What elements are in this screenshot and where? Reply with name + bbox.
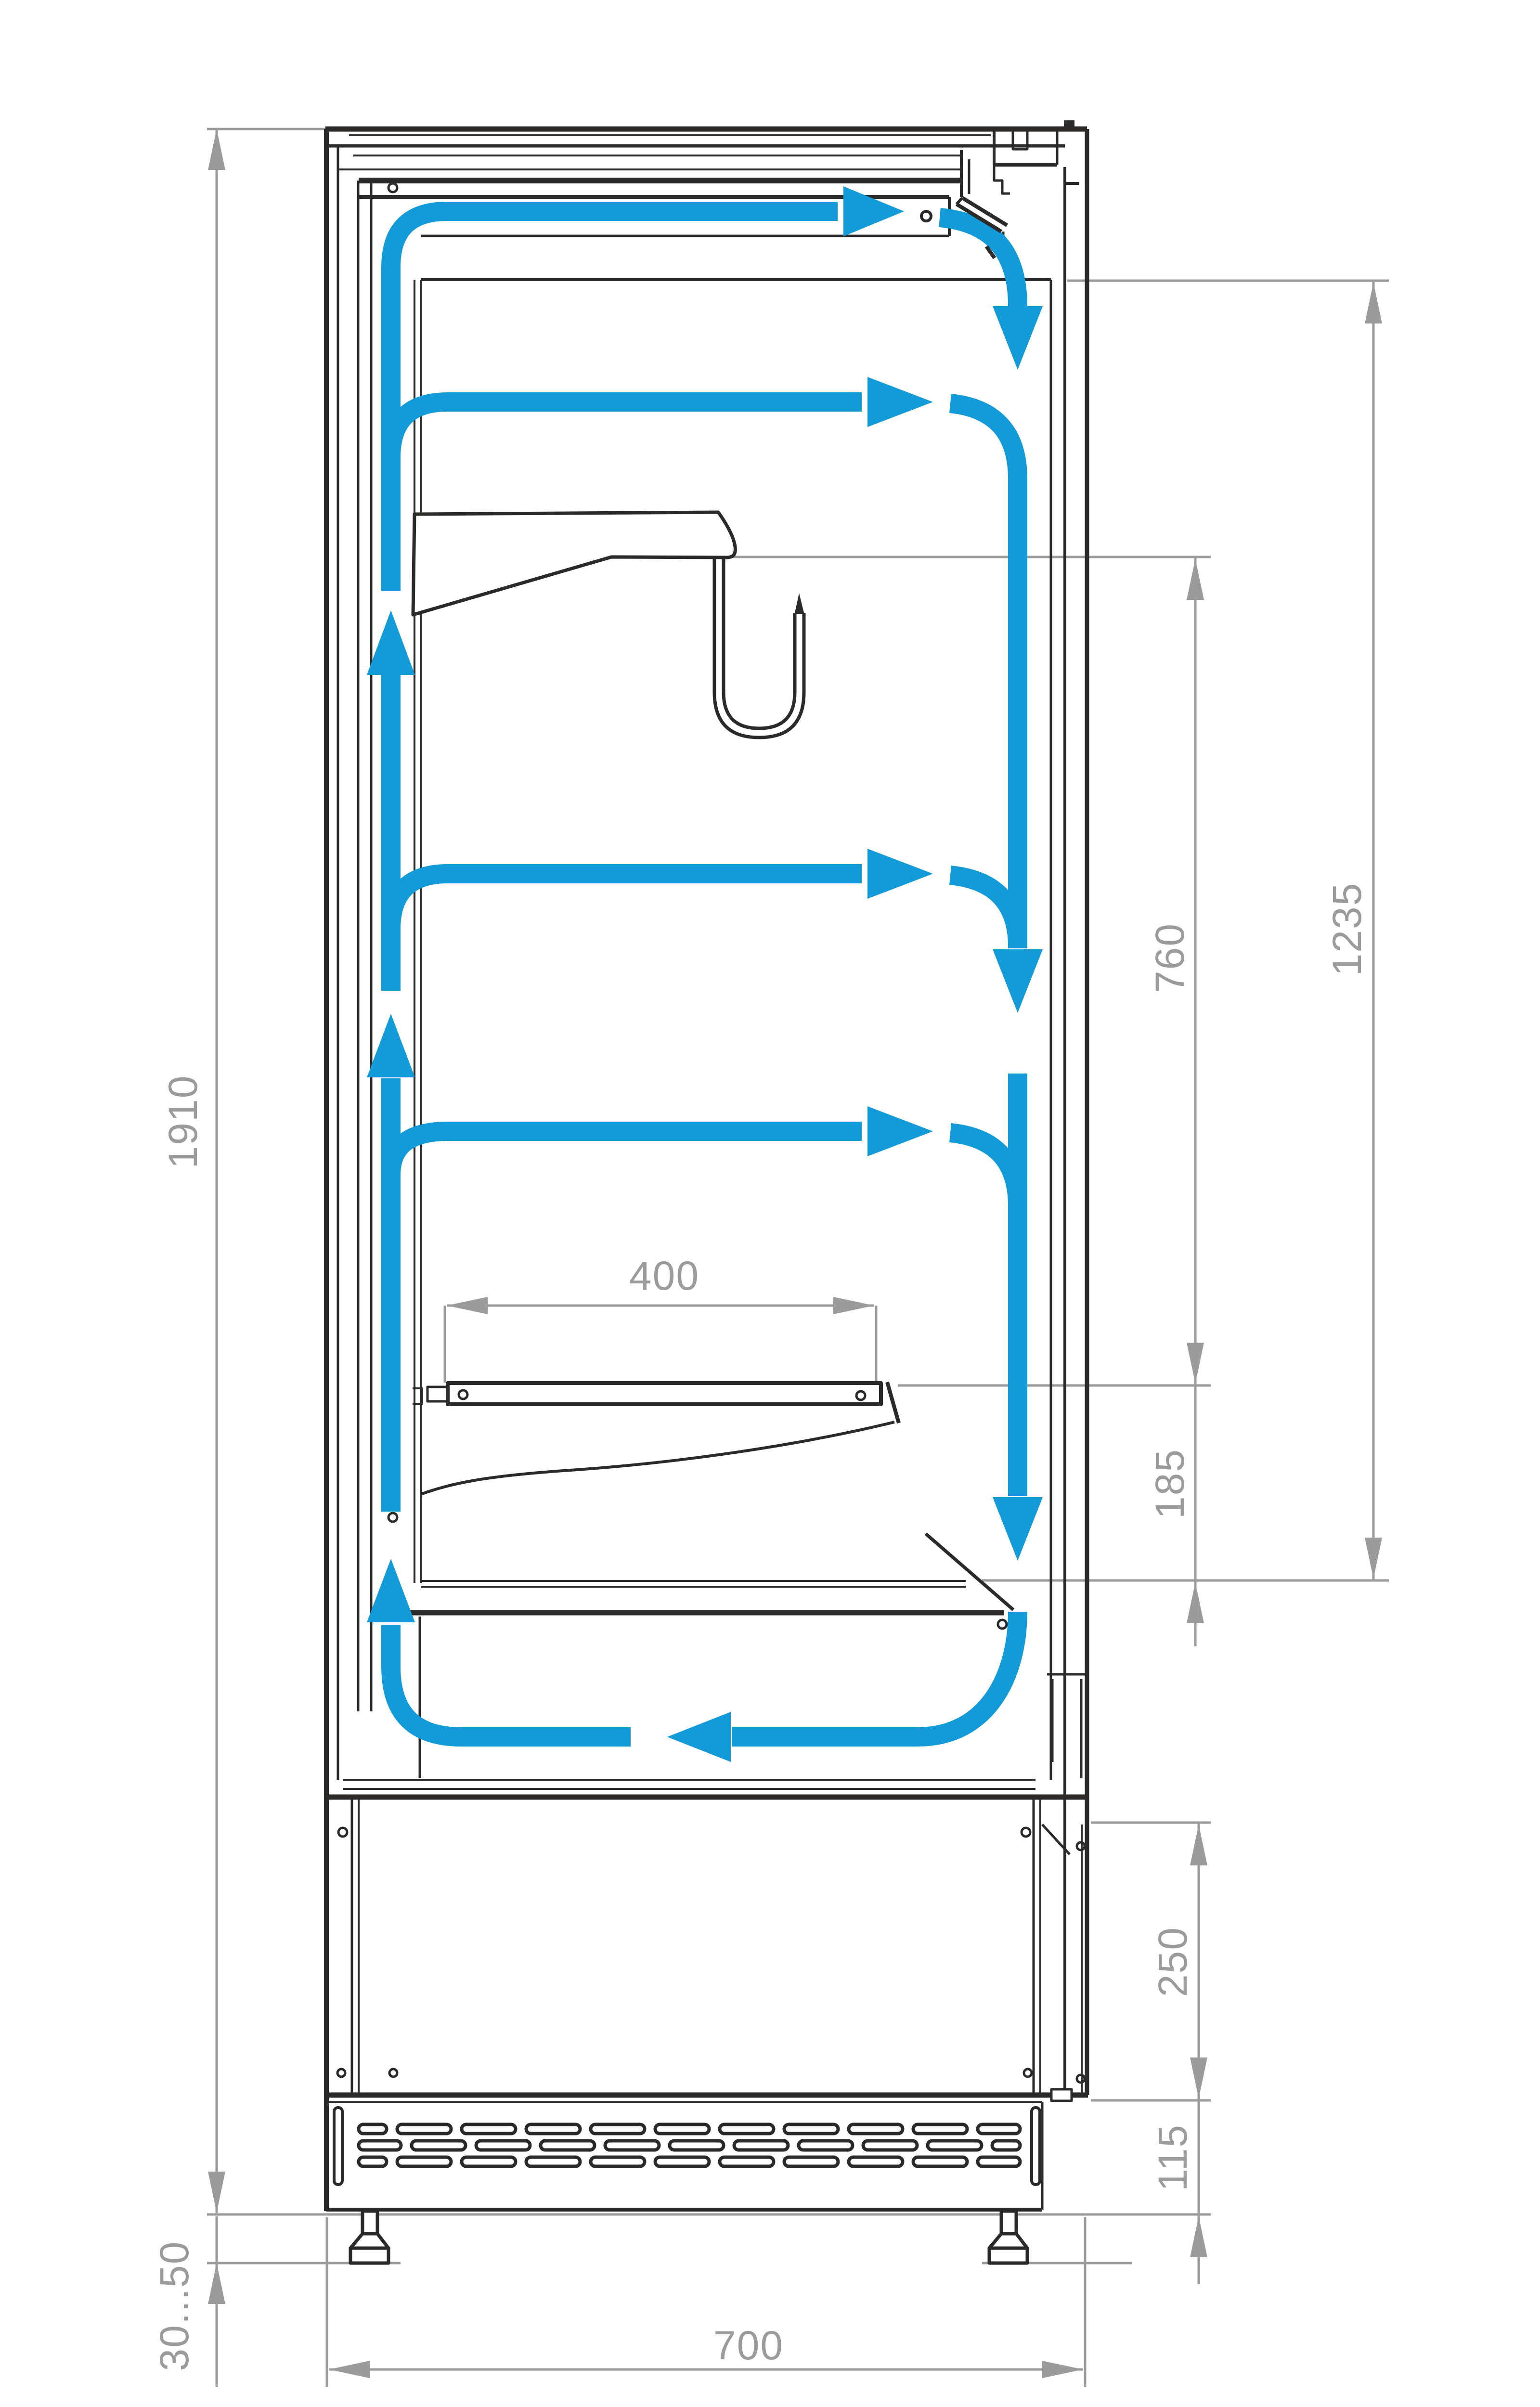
- dim-label-grille: 115: [1150, 2124, 1195, 2191]
- arrow-400-left: [447, 1297, 488, 1314]
- grille-slot: [863, 2141, 917, 2150]
- hook-inner: [724, 558, 795, 728]
- shelf-front-lip: [887, 1382, 899, 1423]
- grille-slot: [526, 2124, 580, 2134]
- intake-deflector: [926, 1534, 1013, 1610]
- airflow-front-merge-4: [950, 1133, 1018, 1206]
- grille-slot: [992, 2141, 1020, 2150]
- duct-screw-mid: [388, 1513, 397, 1522]
- grille-slot: [591, 2124, 645, 2134]
- airflow-return-right: [732, 1612, 1018, 1737]
- airflow-front-merge-3: [950, 875, 1018, 946]
- comp-screw-1: [338, 1828, 347, 1837]
- grille-slot: [397, 2157, 451, 2166]
- airflow-front-seg-2: [950, 403, 1018, 948]
- grille-slot: [462, 2157, 516, 2166]
- grille-slot: [734, 2141, 788, 2150]
- grille-slot: [978, 2157, 1020, 2166]
- foot-left-base: [350, 2248, 388, 2263]
- grille-slot: [655, 2157, 709, 2166]
- grille-slot: [720, 2157, 774, 2166]
- shelf-under-cable: [421, 1422, 894, 1494]
- machine-compartment: [326, 1797, 1088, 2101]
- outlet-box-screw: [921, 211, 931, 221]
- grille-slot: [913, 2157, 967, 2166]
- cabinet-structure: [325, 120, 1088, 2263]
- grille-slot: [359, 2124, 387, 2134]
- airflow-return-left: [391, 1625, 631, 1737]
- arrow-185-bottom: [1187, 1582, 1204, 1623]
- airflow-arrowhead-band-3: [867, 849, 933, 899]
- arrow-1235-top: [1365, 283, 1382, 324]
- airflow-arrows: [367, 186, 1043, 1762]
- arrow-760-top: [1187, 559, 1204, 600]
- foot-right: [989, 2211, 1027, 2263]
- grille-slot: [720, 2124, 774, 2134]
- arrow-feet-bottom: [208, 2263, 225, 2304]
- airflow-arrowhead-front-3: [993, 1497, 1043, 1561]
- grille-slot: [397, 2124, 451, 2134]
- dim-label-duct-to-shelf: 760: [1147, 923, 1192, 993]
- arrow-1910-top: [208, 129, 225, 170]
- cabinet-cross-section-diagram: 1910 30...50 700 400 760 1235 185 250 11…: [0, 0, 1540, 2407]
- canopy-bolt: [1064, 120, 1074, 129]
- comp-screw-5: [337, 2069, 345, 2077]
- grille-slot: [849, 2124, 903, 2134]
- airflow-arrowhead-band-2: [867, 377, 933, 427]
- grille-slot: [359, 2141, 401, 2150]
- arrow-250-top: [1190, 1825, 1207, 1865]
- grille-slot: [412, 2141, 466, 2150]
- arrow-760-bottom: [1187, 1343, 1204, 1384]
- airflow-arrowhead-front-2: [993, 949, 1043, 1013]
- walls: [326, 129, 1087, 2211]
- arrow-250-bottom: [1190, 2058, 1207, 2098]
- airflow-arrowhead-duct-2: [367, 1014, 415, 1077]
- adjustable-feet: [350, 2211, 1027, 2263]
- dim-label-outlet: 185: [1147, 1449, 1192, 1519]
- grille-slot: [849, 2157, 903, 2166]
- dim-label-shelf-depth: 400: [629, 1253, 699, 1298]
- shelf-back-bracket: [427, 1387, 448, 1401]
- grille-slots: [359, 2124, 1020, 2166]
- arrow-bottom-shared: [208, 2172, 225, 2213]
- comp-flange: [1051, 2089, 1072, 2101]
- grille-slot: [605, 2141, 659, 2150]
- arrow-700-left: [329, 2361, 370, 2378]
- foot-right-cone: [989, 2234, 1027, 2248]
- foot-right-base: [989, 2248, 1027, 2263]
- shelf-slab: [448, 1383, 881, 1404]
- comp-screw-2: [1022, 1828, 1030, 1837]
- upper-canopy-shelf: [413, 512, 804, 738]
- airflow-band-2: [391, 402, 862, 486]
- airflow-arrowhead-band-4: [867, 1106, 933, 1156]
- airflow-band-4: [391, 1131, 862, 1199]
- grille-slot: [526, 2157, 580, 2166]
- dim-label-overall-height: 1910: [160, 1075, 206, 1169]
- foot-left: [350, 2211, 388, 2263]
- grille-slot: [913, 2124, 967, 2134]
- duct-screw-top: [388, 183, 397, 192]
- foot-right-stem: [1001, 2211, 1016, 2234]
- canopy-shelf-body: [413, 512, 735, 615]
- grille-slot: [784, 2157, 838, 2166]
- comp-screw-6: [389, 2069, 397, 2077]
- airflow-arrowhead-duct-1: [367, 610, 415, 675]
- grille-slot: [784, 2124, 838, 2134]
- grille-end-slot-left: [334, 2108, 342, 2185]
- airflow-band-3: [391, 874, 862, 958]
- grille-slot: [359, 2157, 387, 2166]
- floor-screw: [998, 1620, 1007, 1629]
- grille-slot: [591, 2157, 645, 2166]
- dim-label-feet-range: 30...50: [152, 2241, 197, 2371]
- grille-slot: [462, 2124, 516, 2134]
- comp-screw-7: [1024, 2069, 1032, 2077]
- grille-slot: [655, 2124, 709, 2134]
- grille-slot: [476, 2141, 530, 2150]
- hook-tip: [795, 593, 804, 613]
- dim-label-compressor: 250: [1150, 1927, 1195, 1997]
- canopy-steps: [994, 165, 1010, 194]
- bottom-basin: [326, 1581, 1088, 1797]
- arrow-115-bottom: [1190, 2216, 1207, 2257]
- arrow-1235-bottom: [1365, 1538, 1382, 1579]
- dim-label-depth: 700: [713, 2323, 784, 2368]
- lower-shelf: [421, 1382, 899, 1494]
- grille-end-slot-right: [1032, 2108, 1040, 2185]
- grille-slot: [928, 2141, 982, 2150]
- grille-slot: [978, 2124, 1020, 2134]
- arrow-700-right: [1042, 2361, 1083, 2378]
- grille-slot: [541, 2141, 595, 2150]
- grille-slot: [799, 2141, 853, 2150]
- airflow-front-elbow-top: [940, 218, 1018, 306]
- airflow-arrowhead-duct-3: [367, 1559, 415, 1622]
- outlet-vane-cap: [957, 198, 962, 204]
- vent-grille: [326, 2102, 1042, 2210]
- airflow-arrowhead-top-band: [843, 186, 904, 236]
- airflow-arrowhead-return: [667, 1712, 731, 1762]
- grille-slot: [670, 2141, 724, 2150]
- foot-left-cone: [350, 2234, 388, 2248]
- airflow-arrowhead-front-1: [993, 306, 1043, 370]
- foot-left-stem: [362, 2211, 377, 2234]
- arrow-400-right: [833, 1297, 874, 1314]
- dim-label-air-curtain: 1235: [1324, 882, 1370, 976]
